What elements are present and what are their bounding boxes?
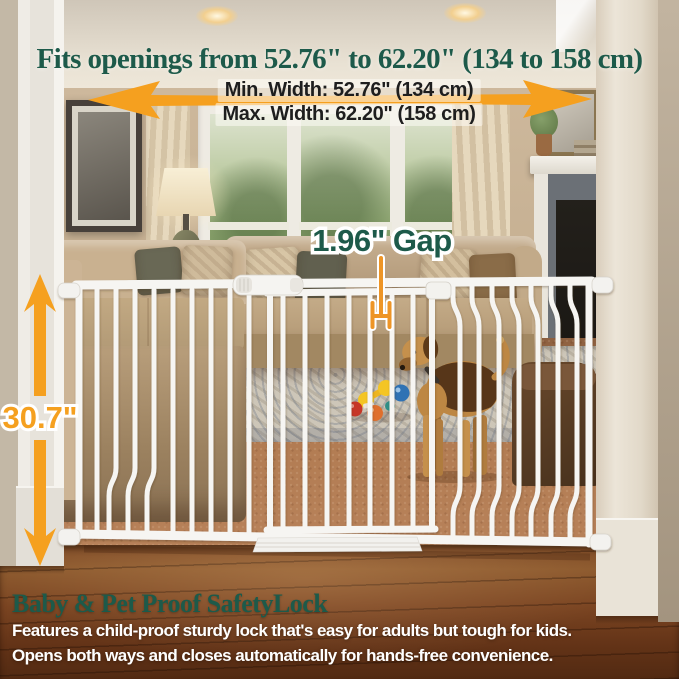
framed-picture [66,100,142,232]
picture-art [78,112,130,220]
leather-chair [512,362,600,486]
max-width-label: Max. Width: 62.20" (158 cm) [215,103,482,126]
throw-pillow [181,245,234,298]
throw-pillow [134,246,184,296]
plant-pot [536,134,552,156]
product-hero-image: 1.96" Gap 30.7" Fits openings from 52.76… [0,0,679,679]
sofa-base [226,334,534,368]
door-trim-right [596,0,660,616]
lamp-shade [156,168,216,216]
recessed-light-icon [444,3,486,23]
sectional-couch [52,240,246,522]
chair-arm-roll [516,364,596,390]
min-width-label: Min. Width: 52.76" (134 cm) [218,79,481,102]
footer-title: Baby & Pet Proof SafetyLock [12,589,327,619]
fireplace-mantel [530,156,606,174]
window-sash [299,222,392,230]
recessed-light-icon [196,6,238,26]
sofa-seat [228,298,532,338]
footer-line-1: Features a child-proof sturdy lock that'… [12,621,572,641]
footer-line-2: Opens both ways and closes automatically… [12,646,553,666]
door-jamb-left [0,0,64,566]
wall-right-edge [658,0,679,622]
sectional-seat [54,298,244,350]
baseboard [16,486,64,566]
jamb-shadow [0,566,64,574]
baseboard [596,518,660,616]
sofa [224,236,536,368]
headline: Fits openings from 52.76" to 62.20" (134… [0,43,679,76]
throw-pillow [244,246,301,302]
trim-shadow [596,616,660,624]
mantel-books [574,140,596,156]
